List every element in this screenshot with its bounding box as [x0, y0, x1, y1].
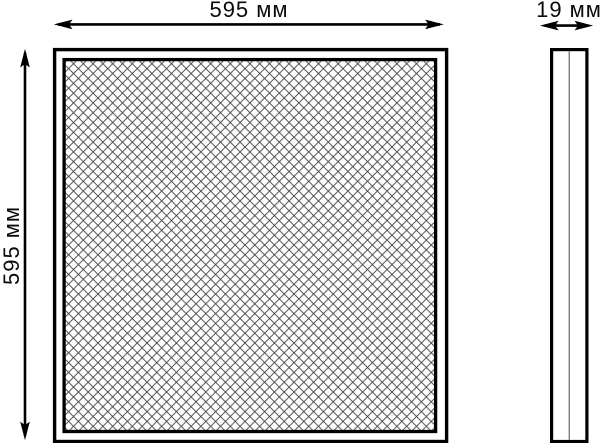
svg-text:595 мм: 595 мм	[209, 0, 288, 22]
svg-text:19 мм: 19 мм	[536, 0, 600, 22]
svg-text:595 мм: 595 мм	[0, 206, 24, 285]
